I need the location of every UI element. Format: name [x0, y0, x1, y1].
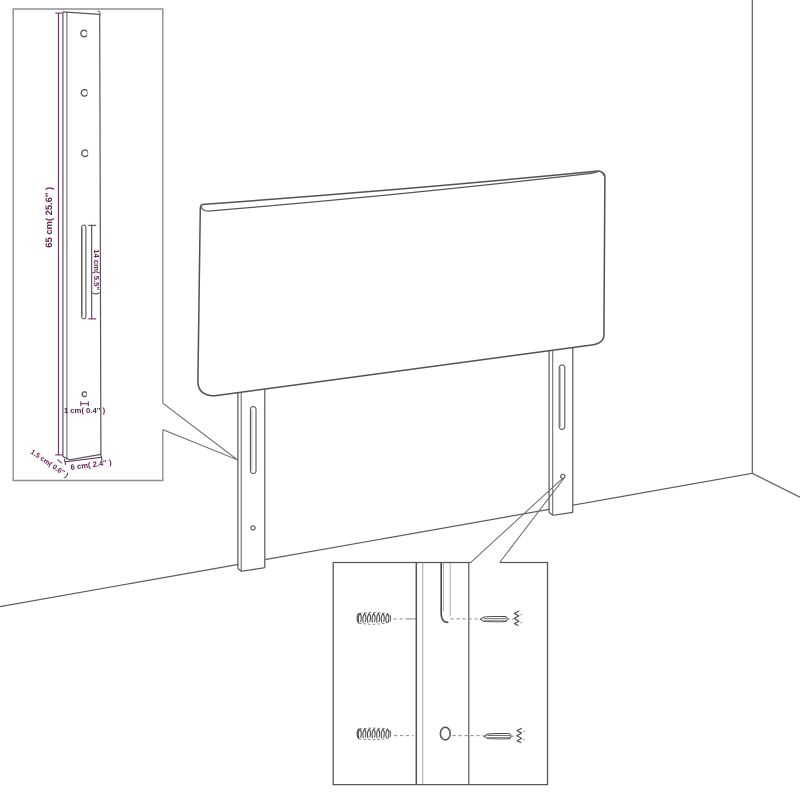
svg-text:1.5 cm( 0.6″ ): 1.5 cm( 0.6″ ) — [29, 448, 70, 480]
svg-text:1 cm( 0.4″ ): 1 cm( 0.4″ ) — [64, 406, 106, 415]
svg-text:65 cm( 25.6″ ): 65 cm( 25.6″ ) — [43, 187, 54, 248]
svg-text:14 cm( 5.5″ ): 14 cm( 5.5″ ) — [92, 249, 101, 295]
svg-text:6 cm( 2.4″ ): 6 cm( 2.4″ ) — [70, 458, 113, 472]
